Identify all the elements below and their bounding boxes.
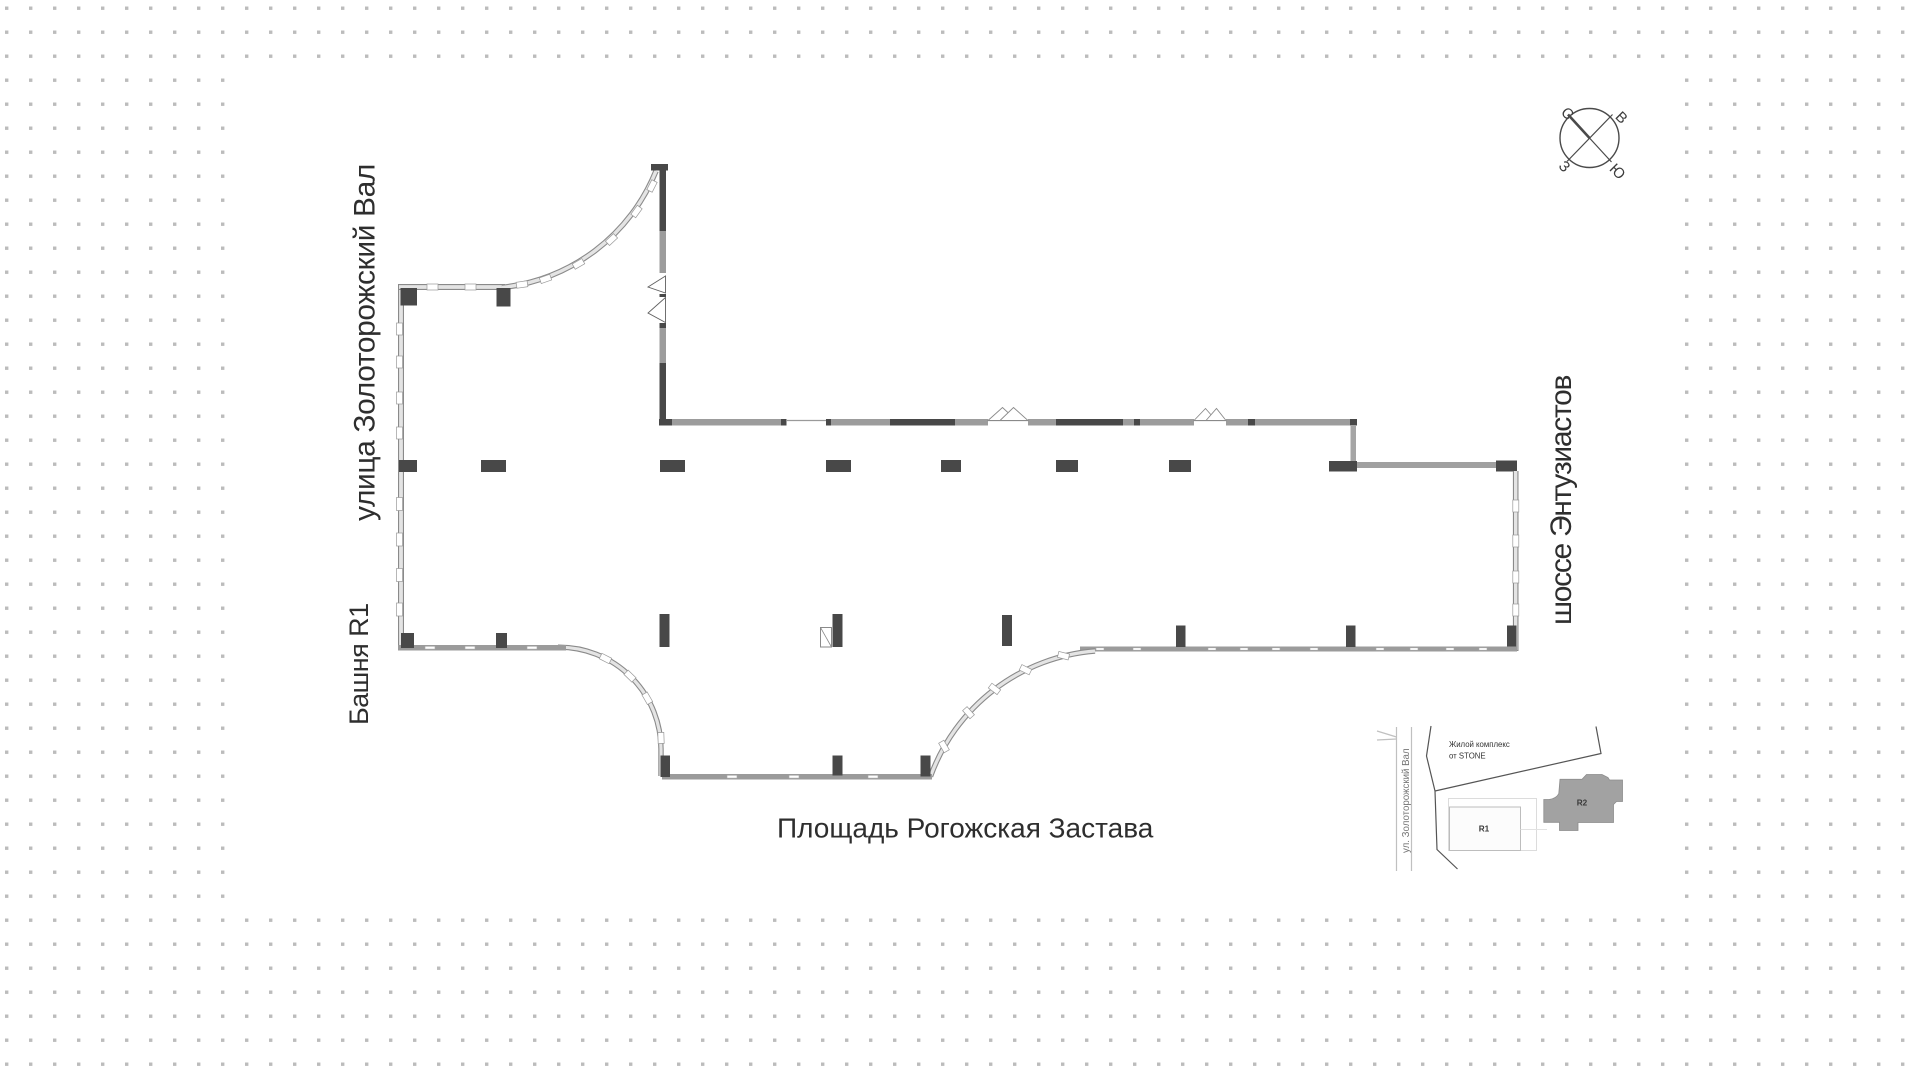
svg-text:от STONE: от STONE [1449,752,1486,761]
svg-text:шоссе Энтузиастов: шоссе Энтузиастов [1545,376,1578,625]
svg-text:улица Золоторожский Вал: улица Золоторожский Вал [349,164,382,521]
svg-text:ул. Золоторожский Вал: ул. Золоторожский Вал [1401,748,1412,853]
svg-text:Башня R1: Башня R1 [344,603,374,725]
svg-text:R1: R1 [1479,825,1490,834]
svg-text:R2: R2 [1577,799,1588,808]
svg-text:Площадь Рогожская Застава: Площадь Рогожская Застава [777,813,1154,844]
svg-text:Жилой комплекс: Жилой комплекс [1449,740,1510,749]
